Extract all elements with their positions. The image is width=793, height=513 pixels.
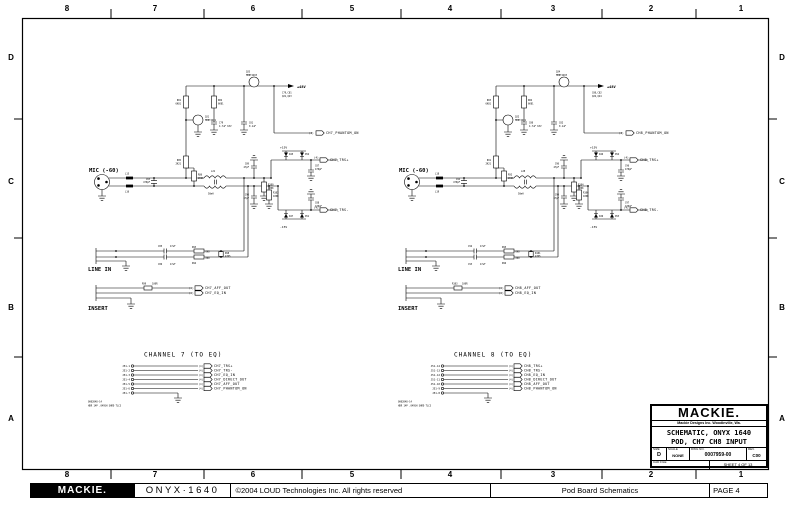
zone-top-8: 8 (57, 4, 77, 14)
pin-label: J51-3 (122, 373, 130, 377)
part-label: R96 (502, 262, 507, 265)
net-flag (204, 377, 212, 381)
diode (610, 214, 614, 218)
resistor (144, 286, 152, 290)
drawing-title-line1: SCHEMATIC, ONYX 1640 (652, 429, 766, 438)
part-label: R103 (452, 283, 458, 286)
part-label: 47uF (480, 245, 486, 248)
connector-part-desc: HDR 14P .049SH SHRD TLC3 (88, 405, 122, 408)
part-label: 470pF (315, 168, 323, 171)
footer-doc-title: Pod Board Schematics (490, 484, 709, 497)
part-label: R94 (192, 262, 197, 265)
net-flag (204, 368, 212, 372)
net-flag (514, 377, 522, 381)
part-label: 0K0 (206, 251, 211, 254)
sheet-ref: (4) (499, 286, 504, 290)
connector-part-desc: HDR 14P .049SH SHRD TLC3 (398, 405, 432, 408)
diode (284, 153, 288, 157)
sheet-ref: (4) (624, 156, 629, 160)
rev-value: C00 (747, 452, 766, 459)
connector-part-number: 0002048-14 (398, 401, 412, 404)
part-label: 47K5 (535, 255, 541, 258)
supply-note: Q22,Q24 (592, 95, 602, 98)
transistor-q2 (503, 115, 513, 125)
cad-file-cell: CAD FILE (652, 461, 710, 470)
part-label: 0.1uF (249, 125, 257, 128)
arrow-48v (598, 84, 604, 88)
pin-circle (441, 365, 443, 367)
zone-bottom-7: 7 (145, 470, 165, 480)
zone-bottom-8: 8 (57, 470, 77, 480)
cad-file-label: CAD FILE (652, 461, 709, 465)
resistor (572, 182, 577, 192)
zone-left-c: C (5, 177, 17, 187)
part-label: 2K21 (508, 177, 514, 180)
part-label: C86 (158, 263, 163, 266)
ground-symbols (408, 130, 625, 402)
net-flag (204, 386, 212, 390)
zone-top-4: 4 (440, 4, 460, 14)
pin-net: CH7_PHANTOM_ON (214, 387, 247, 391)
circuit-ch8: MIC (-60) LINE IN INSERT CHANNEL 8 (TO E… (396, 56, 672, 411)
resistor (494, 156, 499, 168)
part-label: C93 (468, 263, 473, 266)
sheet-ref: (4) (509, 365, 513, 368)
net-aff-out: CH8_AFF_OUT (515, 286, 541, 290)
pin-circle (441, 387, 443, 389)
net-flag (630, 208, 638, 212)
footer-page-number: PAGE 4 (709, 484, 767, 497)
ground-symbols (98, 130, 315, 402)
supply-15v-label: +15V (590, 146, 597, 150)
part-label: 470pF (453, 181, 461, 184)
net-flag (320, 158, 328, 162)
part-label: D52 (305, 153, 310, 156)
net-trs-minus: CH7_TRS- (330, 208, 349, 212)
supply-48v-label: +48V (607, 85, 616, 89)
part-label: 0K0 (516, 257, 521, 260)
pin-label: J51-4 (122, 378, 130, 382)
resistor (504, 249, 514, 253)
resistor (502, 171, 507, 181)
sheet-ref: (4) (309, 131, 314, 135)
pin-circle (441, 374, 443, 376)
pin-net: CH8_AFF_OUT (524, 382, 550, 386)
component-bodies (95, 77, 329, 394)
part-label: L21 (211, 170, 216, 173)
part-label: 6K81 (485, 102, 491, 105)
zone-bottom-3: 3 (543, 470, 563, 480)
mic-label: MIC (-60) (399, 168, 429, 174)
part-label: 470pF (143, 181, 151, 184)
part-label: R93 (192, 246, 197, 249)
part-label: L28 (521, 170, 526, 173)
rev-cell: REV. C00 (747, 448, 766, 460)
pin-net: CH8_EQ_IN (524, 373, 545, 377)
pin-circle (441, 378, 443, 380)
resistor (529, 252, 533, 257)
part-label: C85 (158, 245, 163, 248)
size-value: D (652, 452, 666, 459)
part-label: 100K (583, 195, 589, 198)
part-label: 100K (578, 187, 584, 190)
title-block-fields: SIZE D SCALE NONE DWG NO. 0007959-00 REV… (652, 448, 766, 461)
transistor-q1 (559, 77, 569, 87)
zone-left-b: B (5, 303, 17, 313)
resistor (184, 96, 189, 108)
dwg-cell: DWG NO. 0007959-00 (690, 448, 747, 460)
part-label: D53 (615, 215, 620, 218)
part-label: D47 (289, 215, 294, 218)
net-flag (195, 291, 203, 295)
pin-label: J51-10 (431, 382, 441, 386)
zone-left-d: D (5, 53, 17, 63)
supply-note: Q21,Q23 (282, 95, 292, 98)
part-label: R95 (502, 246, 507, 249)
net-flag (626, 131, 634, 135)
footer-mackie-logo: MACKIE. (31, 484, 134, 497)
net-flag (514, 373, 522, 377)
part-label: 6K81 (218, 102, 224, 105)
part-label: 100R (152, 283, 158, 286)
part-label: 100K (273, 195, 279, 198)
part-label: 2K21 (485, 162, 491, 165)
transformer-coils (514, 176, 536, 188)
sheet-ref: (4) (189, 286, 194, 290)
resistor (192, 171, 197, 181)
zone-bottom-2: 2 (641, 470, 661, 480)
part-label: D45 (289, 153, 294, 156)
net-phantom: CH7_PHANTOM_ON (326, 131, 359, 135)
net-phantom: CH8_PHANTOM_ON (636, 131, 669, 135)
circuit-labels: MIC (-60) LINE IN INSERT CHANNEL 7 (TO E… (88, 71, 359, 408)
insert-label: INSERT (88, 306, 109, 312)
net-flag (514, 382, 522, 386)
sheet-ref: (4) (509, 370, 513, 373)
zone-top-6: 6 (243, 4, 263, 14)
pin-label: J51-9 (432, 387, 440, 391)
part-label: 47uF (170, 245, 176, 248)
zone-top-2: 2 (641, 4, 661, 14)
zone-top-7: 7 (145, 4, 165, 14)
part-label: MMBT4403 (556, 74, 568, 77)
pin-net: CH8_TRS+ (524, 364, 543, 368)
circuit-ch7: MIC (-60) LINE IN INSERT CHANNEL 7 (TO E… (86, 56, 362, 411)
scale-value: NONE (667, 452, 689, 459)
resistor (219, 252, 223, 257)
part-label: 0K0 (206, 257, 211, 260)
pin-label: J51-11 (431, 378, 441, 382)
zone-right-a: A (776, 414, 788, 424)
insert-label: INSERT (398, 306, 419, 312)
resistor (212, 96, 217, 108)
title-block-logo-row: MACKIE. Mackie Designs Inc. Woodinville,… (652, 406, 766, 427)
part-label: 470pF (315, 205, 323, 208)
part-label: D49 (599, 215, 604, 218)
part-label: L16 (125, 190, 130, 193)
pin-net: CH7_TRS- (214, 369, 233, 373)
part-label: 47uF (170, 263, 176, 266)
part-label: 4.7uF 63V (219, 125, 232, 128)
footer-bar: MACKIE. ONYX·1640 ©2004 LOUD Technologie… (30, 483, 768, 498)
net-flag (630, 158, 638, 162)
transistor-q1 (249, 77, 259, 87)
arrow-48v (288, 84, 294, 88)
sheet-ref: (4) (199, 388, 203, 391)
pin-label: J51-2 (122, 369, 130, 373)
resistor (194, 249, 204, 253)
company-line: Mackie Designs Inc. Woodinville, Wa. (652, 420, 766, 426)
part-label: 47pF (243, 166, 249, 169)
net-trs-plus: CH8_TRS+ (640, 158, 659, 162)
component-bodies (405, 77, 639, 394)
resistor (454, 286, 462, 290)
ferrite-bead (436, 177, 443, 180)
resistor (504, 255, 514, 259)
zone-top-5: 5 (342, 4, 362, 14)
supply-neg15v-label: -15V (280, 225, 287, 229)
pin-circle (441, 369, 443, 371)
supply-48v-label: +48V (297, 85, 306, 89)
pin-circle (441, 383, 443, 385)
part-label: 470pF (625, 205, 633, 208)
diode (594, 153, 598, 157)
pin-label: J51-13 (431, 369, 441, 373)
net-flag (514, 386, 522, 390)
part-label: 47uF (480, 263, 486, 266)
pin-net: CH7_AFF_OUT (214, 382, 240, 386)
resistor (194, 255, 204, 259)
part-label: 0K0 (516, 251, 521, 254)
part-label: 6K81 (528, 102, 534, 105)
part-label: 470pF (625, 168, 633, 171)
transistor-q2 (193, 115, 203, 125)
part-label: 6K81 (175, 102, 181, 105)
zone-right-b: B (776, 303, 788, 313)
sheet-ref: (4) (199, 370, 203, 373)
sheet-ref: (4) (199, 379, 203, 382)
part-label: 47K5 (225, 255, 231, 258)
connector-part-number: 0002048-14 (88, 401, 102, 404)
ferrite-bead (126, 185, 133, 188)
net-flag (204, 364, 212, 368)
pin-label: J51-14 (431, 364, 441, 368)
scale-cell: SCALE NONE (667, 448, 690, 460)
part-label: L18 (435, 173, 440, 176)
pin-net: CH8_PHANTOM_ON (524, 387, 557, 391)
ferrite-bead (126, 177, 133, 180)
part-label: L19 (435, 190, 440, 193)
part-label: D51 (305, 215, 310, 218)
pin-circle (131, 387, 133, 389)
zone-left-a: A (5, 414, 17, 424)
sheet-ref: (4) (509, 383, 513, 386)
sheet-ref: (4) (189, 291, 194, 295)
pin-net: CH7_DIRECT_OUT (214, 378, 247, 382)
diode (284, 214, 288, 218)
part-label: 47pF (553, 166, 559, 169)
solid-symbols (97, 84, 312, 258)
footer-product-name: ONYX·1640 (134, 484, 231, 497)
transformer-coils (204, 176, 226, 188)
pin-circle (441, 392, 443, 394)
part-label: 0.1uF (559, 125, 567, 128)
pin-label: J51-12 (431, 373, 441, 377)
schematic-sheet: 8 7 6 5 4 3 2 1 8 7 6 5 4 3 2 1 D C B A … (0, 0, 793, 513)
pin-circle (131, 374, 133, 376)
sheet-ref: (4) (509, 379, 513, 382)
ferrite-bead (436, 185, 443, 188)
net-trs-plus: CH7_TRS+ (330, 158, 349, 162)
net-flag (316, 131, 324, 135)
pin-circle (131, 378, 133, 380)
sheet-ref: (4) (509, 388, 513, 391)
net-trs-minus: CH8_TRS- (640, 208, 659, 212)
diode (594, 214, 598, 218)
net-flag (505, 286, 513, 290)
supply-neg15v-label: -15V (590, 225, 597, 229)
diode (300, 214, 304, 218)
net-aff-out: CH7_AFF_OUT (205, 286, 231, 290)
zone-bottom-1: 1 (731, 470, 751, 480)
size-cell: SIZE D (652, 448, 667, 460)
pin-net: CH7_TRS+ (214, 364, 233, 368)
net-flag (505, 291, 513, 295)
net-flag (514, 368, 522, 372)
part-label: L15 (125, 173, 130, 176)
resistor (577, 190, 582, 200)
part-label: 47pF (243, 197, 249, 200)
net-flag (195, 286, 203, 290)
part-label: 2K21 (198, 177, 204, 180)
pin-label: J51-8 (432, 391, 440, 395)
part-label: MMBT4403 (246, 74, 258, 77)
pin-net: CH7_EQ_IN (214, 373, 235, 377)
diode (300, 153, 304, 157)
net-flag (204, 373, 212, 377)
resistor (184, 156, 189, 168)
net-flag (204, 382, 212, 386)
pin-net: CH8_TRS- (524, 369, 543, 373)
zone-top-3: 3 (543, 4, 563, 14)
line-in-label: LINE IN (398, 267, 421, 273)
net-flag (514, 364, 522, 368)
sheet-ref: (4) (509, 374, 513, 377)
diode-bars (284, 157, 304, 214)
resistor (522, 96, 527, 108)
pin-label: J51-6 (122, 387, 130, 391)
pin-circle (131, 392, 133, 394)
title-block: MACKIE. Mackie Designs Inc. Woodinville,… (650, 404, 768, 468)
pin-circle (131, 369, 133, 371)
resistor (494, 96, 499, 108)
net-eq-in: CH7_EQ_IN (205, 291, 226, 295)
pin-label: J51-1 (122, 364, 130, 368)
part-label: MMBT4401 (205, 119, 217, 122)
pin-circle (131, 383, 133, 385)
part-label: 47pF (553, 197, 559, 200)
part-label: D46 (599, 153, 604, 156)
mic-label: MIC (-60) (89, 168, 119, 174)
sheet-ref: (4) (199, 383, 203, 386)
channel-header: CHANNEL 8 (TO EQ) (454, 352, 532, 359)
part-label: 100K (268, 187, 274, 190)
part-label: MMBT4401 (515, 119, 527, 122)
part-label: 4.7uF 63V (529, 125, 542, 128)
part-label: 50mH (208, 193, 214, 196)
zone-bottom-5: 5 (342, 470, 362, 480)
title-block-bottom: CAD FILE SHEET 4 OF 13 (652, 461, 766, 470)
zone-right-d: D (776, 53, 788, 63)
mackie-logo: MACKIE. (652, 406, 766, 420)
net-flag (320, 208, 328, 212)
resistor (262, 182, 267, 192)
footer-copyright: ©2004 LOUD Technologies Inc. All rights … (230, 484, 489, 497)
sheet-ref: (4) (499, 291, 504, 295)
diode (610, 153, 614, 157)
net-eq-in: CH8_EQ_IN (515, 291, 536, 295)
circuit-labels: MIC (-60) LINE IN INSERT CHANNEL 8 (TO E… (398, 71, 669, 408)
part-label: C92 (468, 245, 473, 248)
solid-symbols (407, 84, 622, 258)
zone-right-c: C (776, 177, 788, 187)
pin-circle (131, 365, 133, 367)
sheet-ref: (4) (619, 131, 624, 135)
sheet-ref: (4) (199, 365, 203, 368)
pin-net: CH8_DIRECT_OUT (524, 378, 557, 382)
part-label: 100R (462, 283, 468, 286)
resistor (267, 190, 272, 200)
part-label: 50mH (518, 193, 524, 196)
drawing-title-line2: POD, CH7 CH8 INPUT (652, 438, 766, 447)
zone-bottom-6: 6 (243, 470, 263, 480)
line-in-label: LINE IN (88, 267, 111, 273)
channel-header: CHANNEL 7 (TO EQ) (144, 352, 222, 359)
dwg-number: 0007959-00 (690, 452, 746, 459)
sheet-ref: (4) (314, 156, 319, 160)
pin-label: J51-5 (122, 382, 130, 386)
zone-top-1: 1 (731, 4, 751, 14)
sheet-ref: (4) (199, 374, 203, 377)
zone-bottom-4: 4 (440, 470, 460, 480)
drawing-title: SCHEMATIC, ONYX 1640 POD, CH7 CH8 INPUT (652, 427, 766, 448)
part-label: D54 (615, 153, 620, 156)
diode-bars (594, 157, 614, 214)
pin-label: J51-7 (122, 391, 130, 395)
part-label: 2K21 (175, 162, 181, 165)
part-label: R99 (142, 283, 147, 286)
sheet-number: SHEET 4 OF 13 (710, 461, 766, 470)
supply-15v-label: +15V (280, 146, 287, 150)
